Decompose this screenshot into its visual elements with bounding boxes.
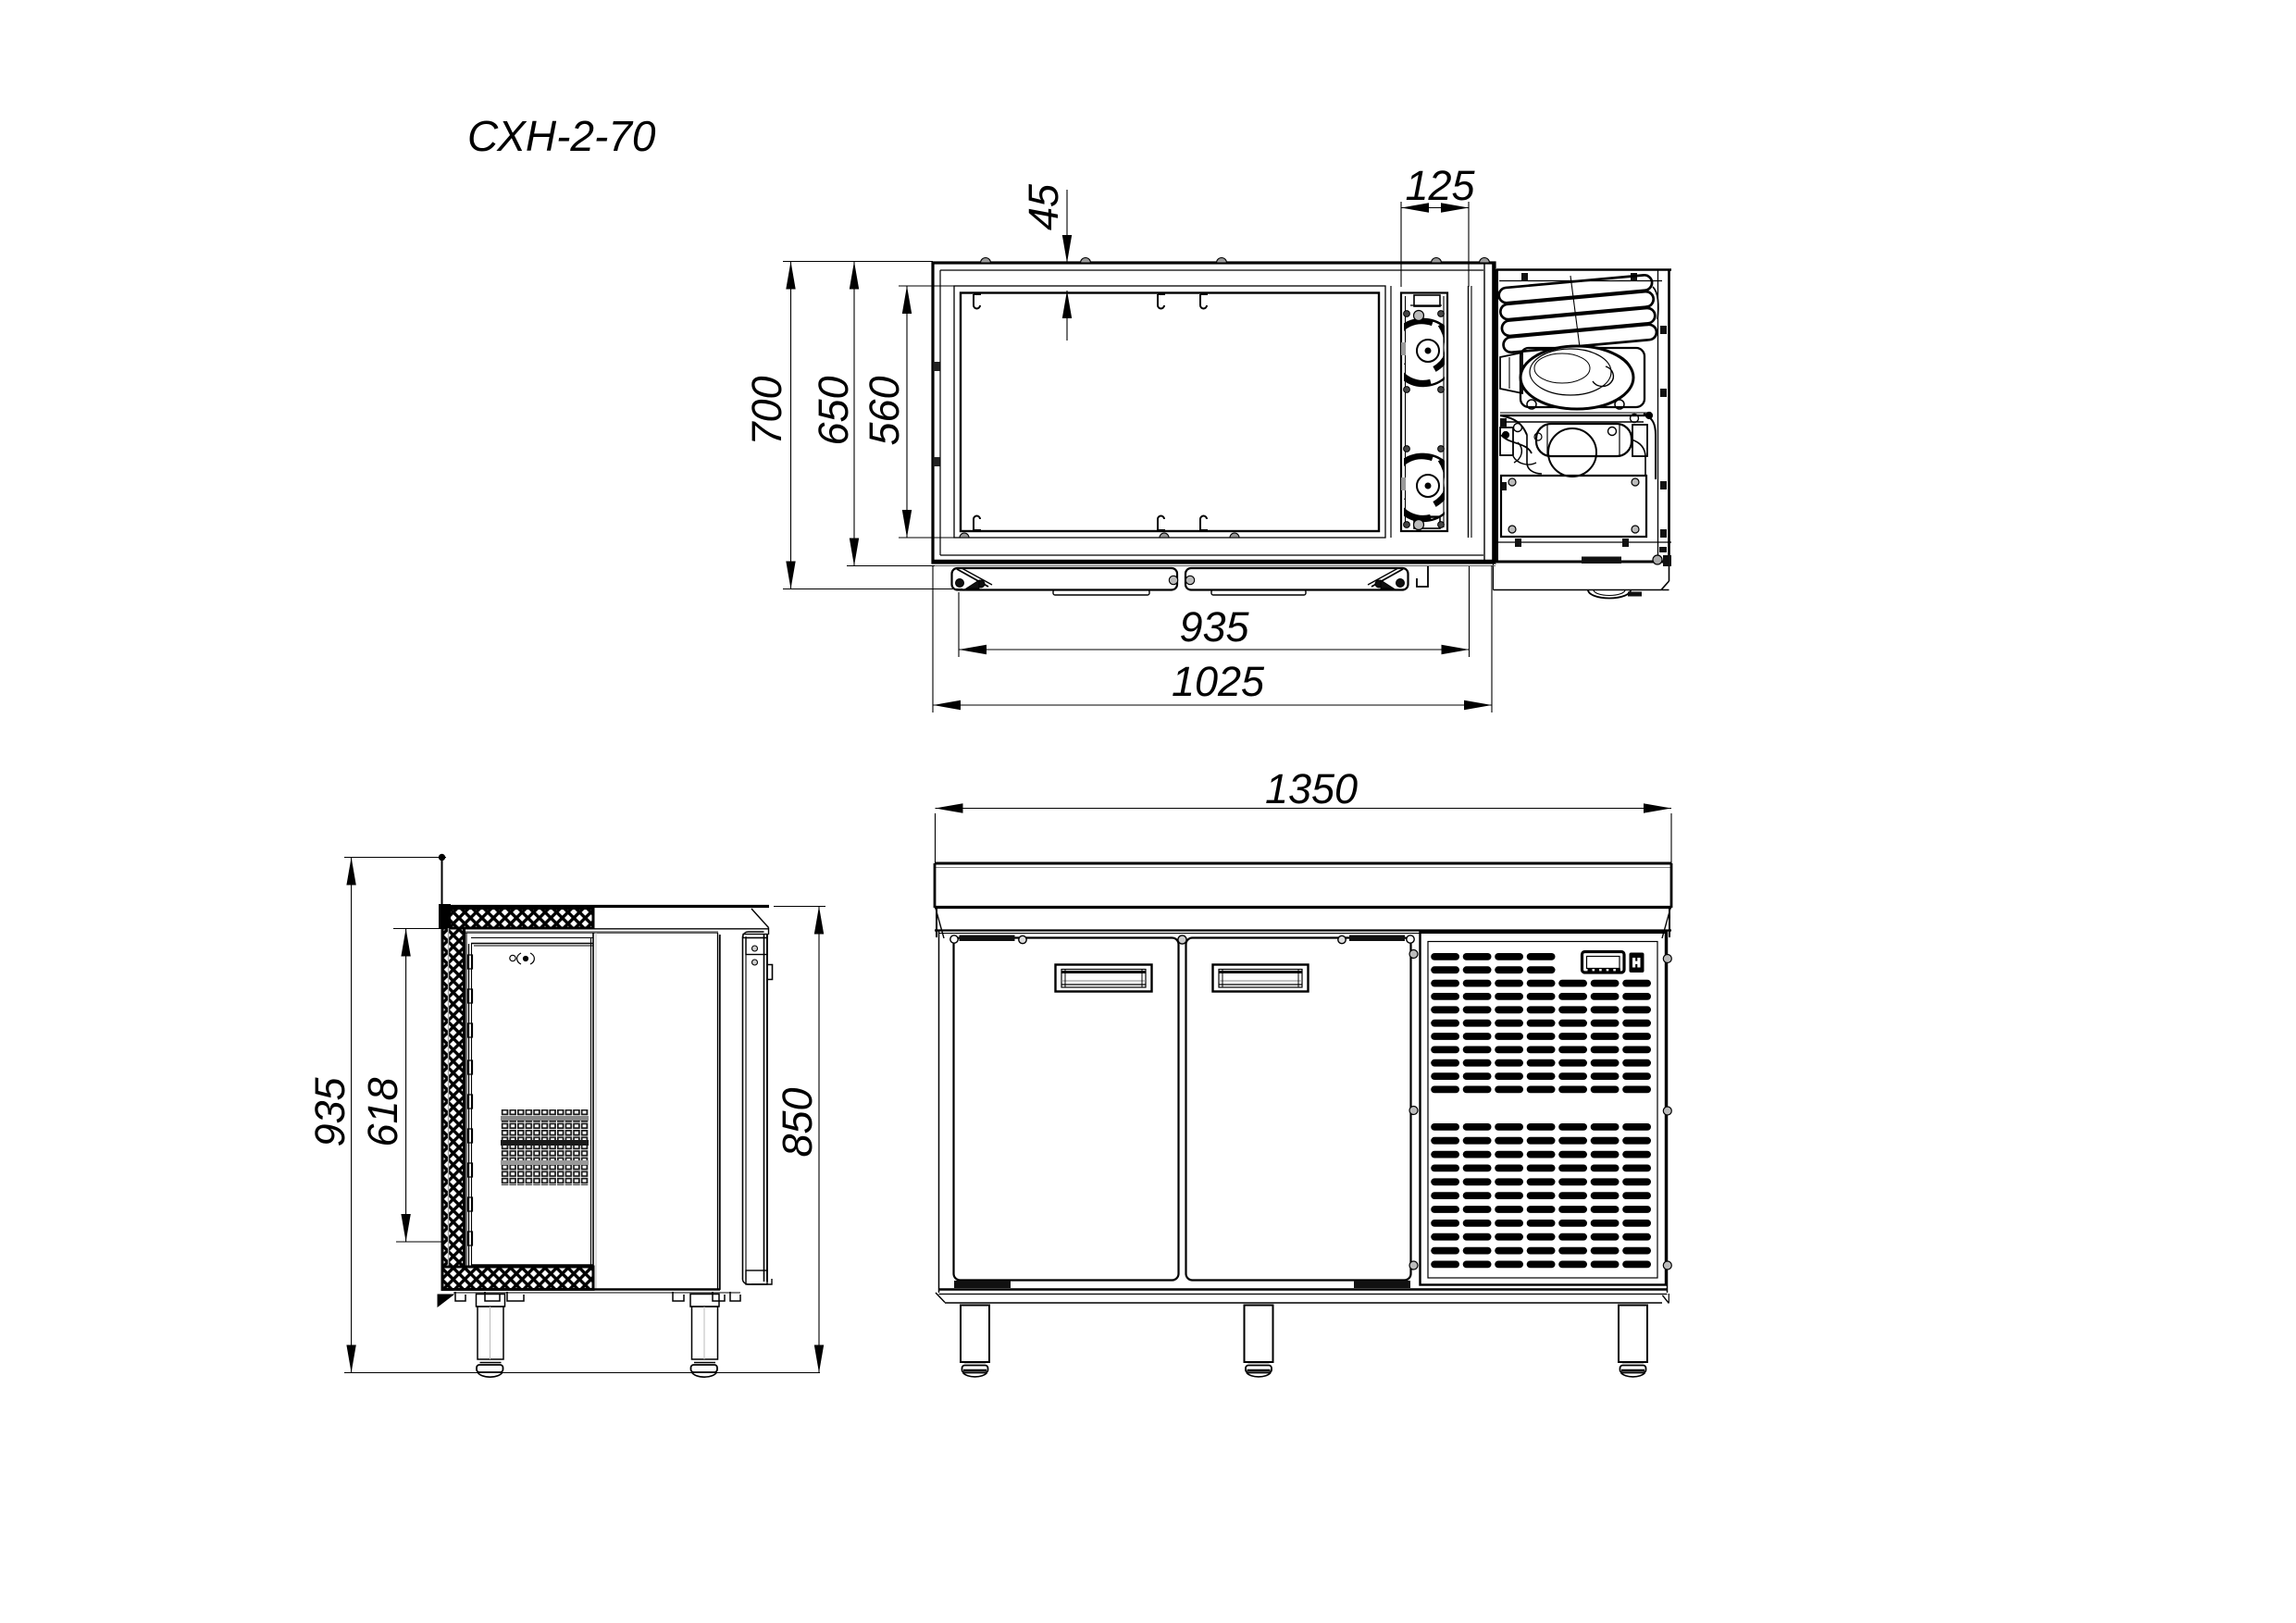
- svg-text:560: 560: [861, 376, 908, 445]
- svg-text:650: 650: [810, 376, 857, 445]
- svg-text:СХН-2-70: СХН-2-70: [467, 112, 656, 160]
- svg-text:125: 125: [1405, 162, 1475, 209]
- svg-text:618: 618: [359, 1077, 406, 1146]
- svg-text:935: 935: [1179, 603, 1249, 650]
- svg-text:45: 45: [1020, 183, 1067, 230]
- svg-text:1350: 1350: [1265, 765, 1358, 812]
- svg-text:1025: 1025: [1172, 658, 1265, 705]
- svg-text:935: 935: [306, 1076, 354, 1146]
- svg-text:700: 700: [743, 376, 790, 445]
- svg-text:850: 850: [774, 1087, 821, 1157]
